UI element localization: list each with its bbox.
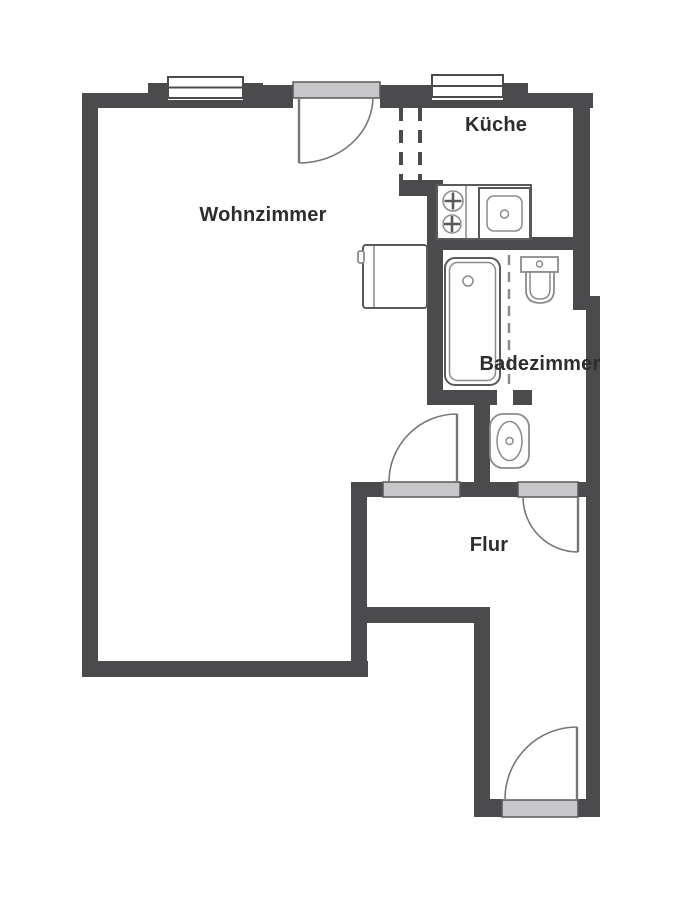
balcony-door-slab [293,82,380,98]
floor-plan-drawing [0,0,683,900]
door-bathroom-hall [523,497,578,552]
balcony-door [299,97,373,163]
room-label-wohnzimmer: Wohnzimmer [199,205,326,225]
door-threshold-bathroom [518,482,578,497]
door-threshold-living-room [383,482,460,497]
floor-plan: Wohnzimmer Küche Badezimmer Flur [0,0,683,900]
window-living-room [168,77,243,98]
cabinet [358,245,427,308]
kitchen-sink [479,188,530,239]
washbasin [521,257,558,303]
room-label-kueche: Küche [465,115,527,135]
open-passage-dashed [401,108,420,180]
door-threshold-entry [502,800,578,817]
room-label-flur: Flur [470,535,509,555]
door-living-room-hall [389,414,457,482]
entry-door [505,727,577,799]
room-label-badezimmer: Badezimmer [480,354,601,374]
window-kitchen [432,75,503,97]
toilet [490,414,529,468]
